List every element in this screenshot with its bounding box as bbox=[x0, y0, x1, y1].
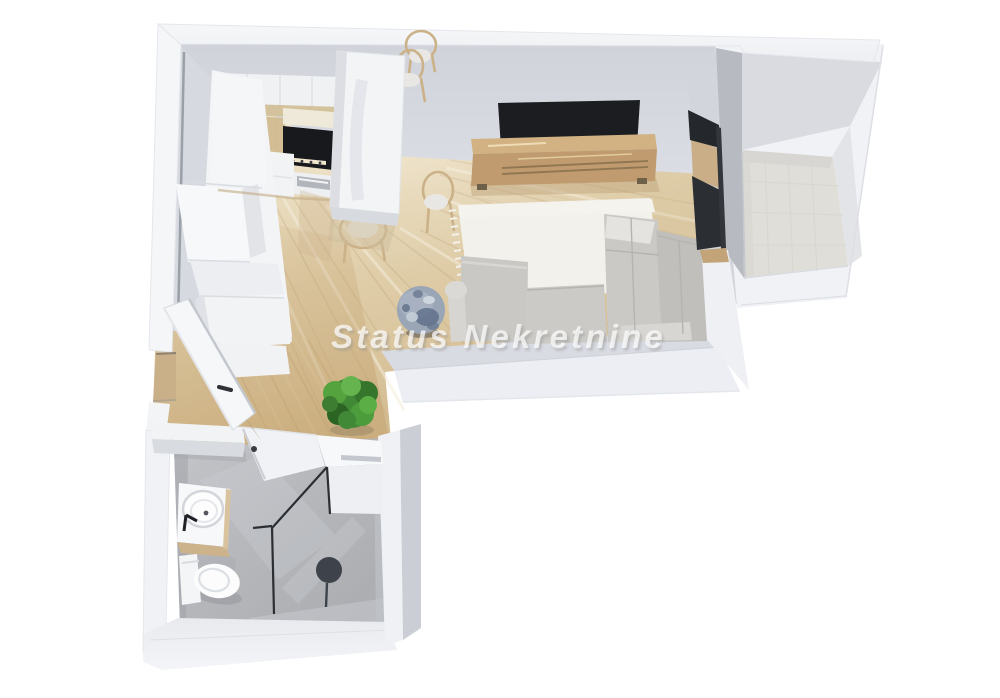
svg-text:Status Nekretnine: Status Nekretnine bbox=[331, 318, 666, 355]
